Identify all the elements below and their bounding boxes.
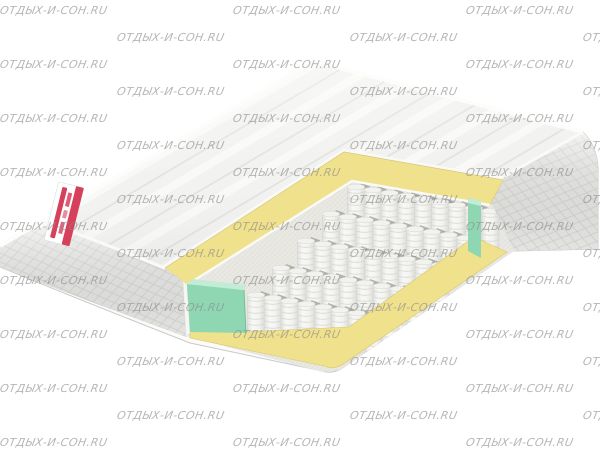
mattress-product-photo: отдых-и-сон.ruотдых-и-сон.ruотдых-и-сон.… [0, 0, 600, 450]
foam-edge-green-left [187, 279, 247, 333]
mattress-cutaway-illustration [0, 0, 600, 450]
foam-edge-green-right [468, 198, 481, 258]
